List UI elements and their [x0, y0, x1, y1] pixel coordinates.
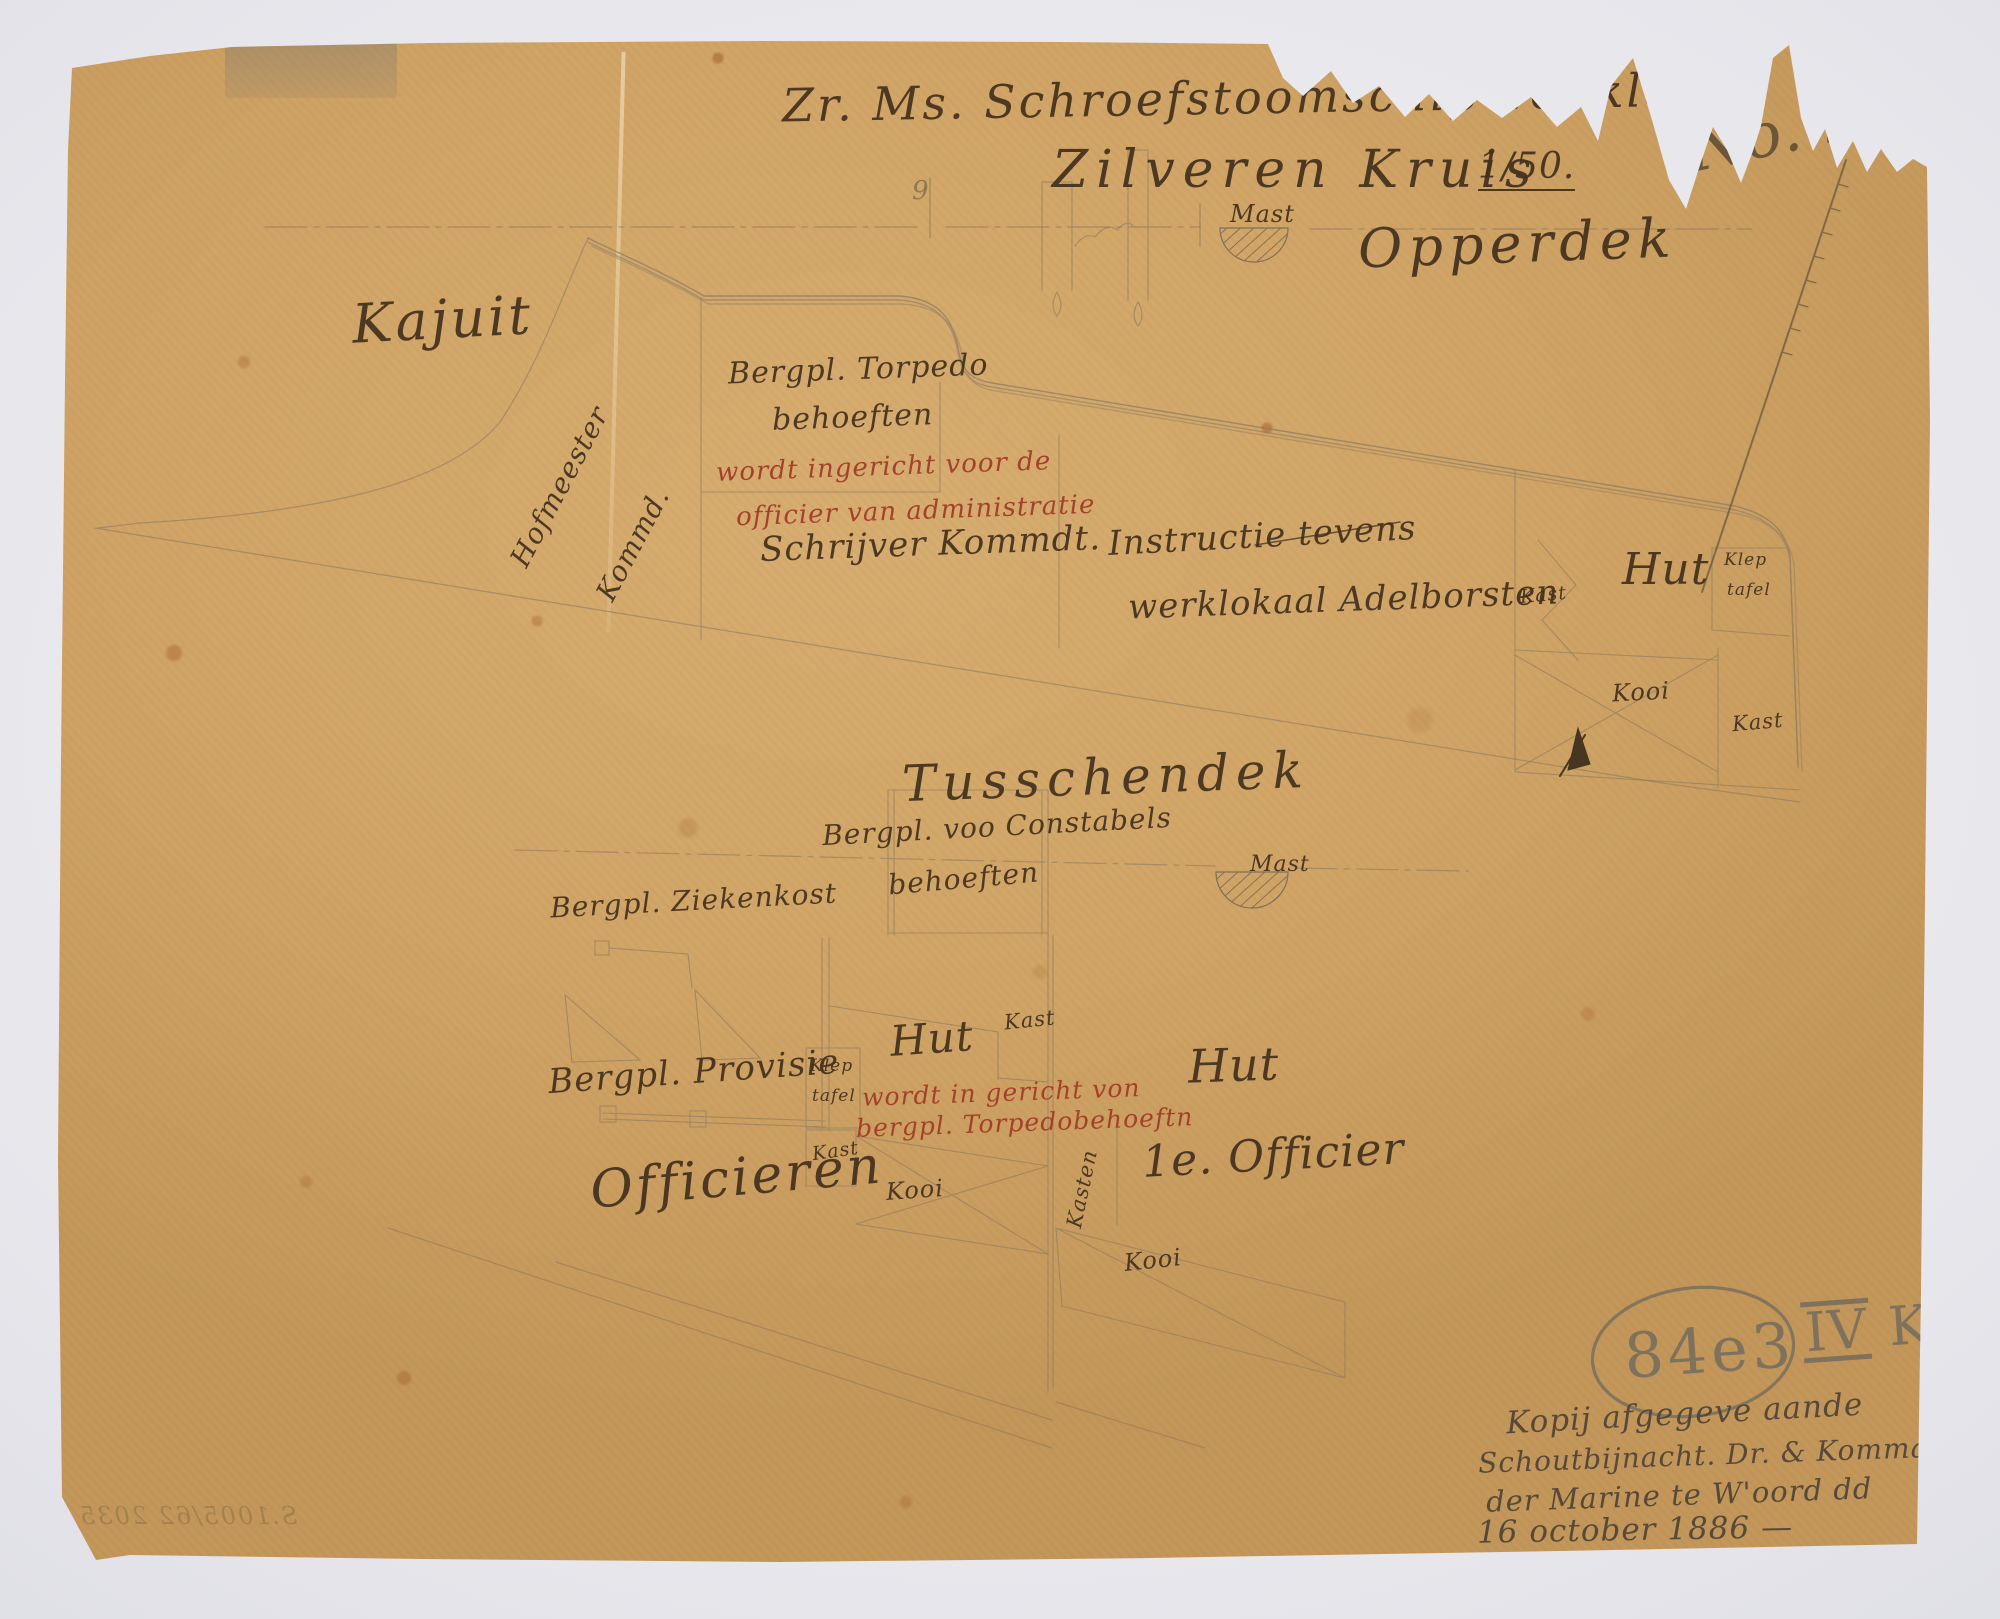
label-klep-upper: Klep	[1724, 550, 1767, 570]
label-kast-door: Kast	[1519, 582, 1568, 608]
label-tafel-mid: tafel	[812, 1086, 856, 1106]
label-hut-officier: Hut	[1187, 1036, 1280, 1093]
label-kast-corner: Kast	[1731, 708, 1784, 736]
sheet-number-stroke	[1702, 160, 1848, 592]
copy-note-line4: 16 october 1886 —	[1477, 1509, 1794, 1551]
stamp-class: IV K2	[1800, 1291, 1960, 1365]
lower-hull-lines	[388, 1228, 1205, 1448]
label-mast-lower: Mast	[1250, 852, 1310, 877]
label-kooi-left: Kooi	[885, 1174, 945, 1206]
label-opperdek: Opperdek	[1357, 206, 1677, 280]
mast-symbol-lower	[1216, 872, 1288, 908]
title-line2: Zilveren Kruis	[1052, 140, 1540, 200]
scanned-ship-plan-page: { "header": { "title_line1": "Zr. Ms. Sc…	[0, 0, 2000, 1619]
stamp-roman-iv: IV	[1800, 1298, 1872, 1364]
aged-tracing-paper-sheet: Zr. Ms. Schroefstoomschip 1e. klasse Zil…	[0, 0, 2000, 1619]
frame-number: 9	[912, 176, 930, 206]
label-kajuit: Kajuit	[350, 283, 534, 355]
stamp-2: 2	[1929, 1314, 1961, 1366]
room-torpedo-line2: behoeften	[771, 397, 933, 438]
bleedthrough-inventory-number: S.1005/62 2035	[78, 1502, 298, 1530]
stamp-k: K	[1886, 1293, 1932, 1359]
label-klep-mid: Klep	[810, 1056, 853, 1076]
label-hut-mid: Hut	[888, 1011, 975, 1066]
scale-label: 1/50.	[1478, 146, 1575, 191]
mast-symbol-upper	[1220, 228, 1288, 262]
stamp-number: 84e3	[1622, 1308, 1798, 1393]
label-mast-upper: Mast	[1230, 200, 1295, 228]
label-tafel-upper: tafel	[1727, 580, 1771, 600]
label-hut-upper: Hut	[1622, 544, 1709, 595]
label-kooi-upper: Kooi	[1611, 677, 1670, 708]
